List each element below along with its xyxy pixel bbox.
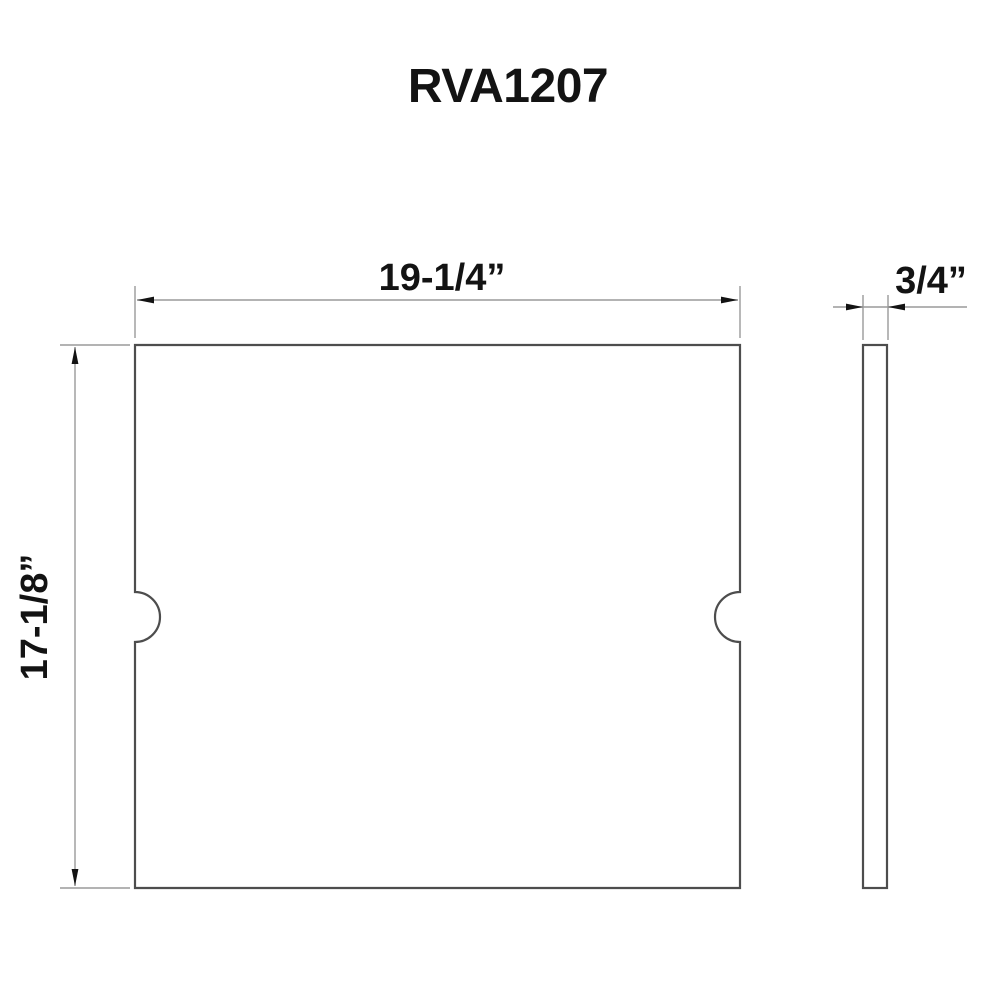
width-dimension: 19-1/4” [135,257,740,338]
drawing-sheet: RVA1207 19-1/4” 17-1/8” [0,0,1000,1000]
front-view [135,345,740,888]
height-dimension: 17-1/8” [14,345,130,888]
height-arrowhead-top-icon [72,347,79,364]
board-side-outline [863,345,887,888]
technical-drawing-canvas: RVA1207 19-1/4” 17-1/8” [0,0,1000,1000]
thickness-dimension: 3/4” [833,260,967,340]
side-view [863,345,887,888]
thickness-arrowhead-left-icon [846,304,863,311]
width-arrowhead-left-icon [137,297,154,304]
height-arrowhead-bottom-icon [72,869,79,886]
board-front-outline [135,345,740,888]
thickness-dimension-label: 3/4” [895,260,967,302]
part-number-title: RVA1207 [408,60,608,113]
width-arrowhead-right-icon [721,297,738,304]
width-dimension-label: 19-1/4” [379,257,506,299]
thickness-arrowhead-right-icon [888,304,905,311]
height-dimension-label: 17-1/8” [14,554,56,681]
